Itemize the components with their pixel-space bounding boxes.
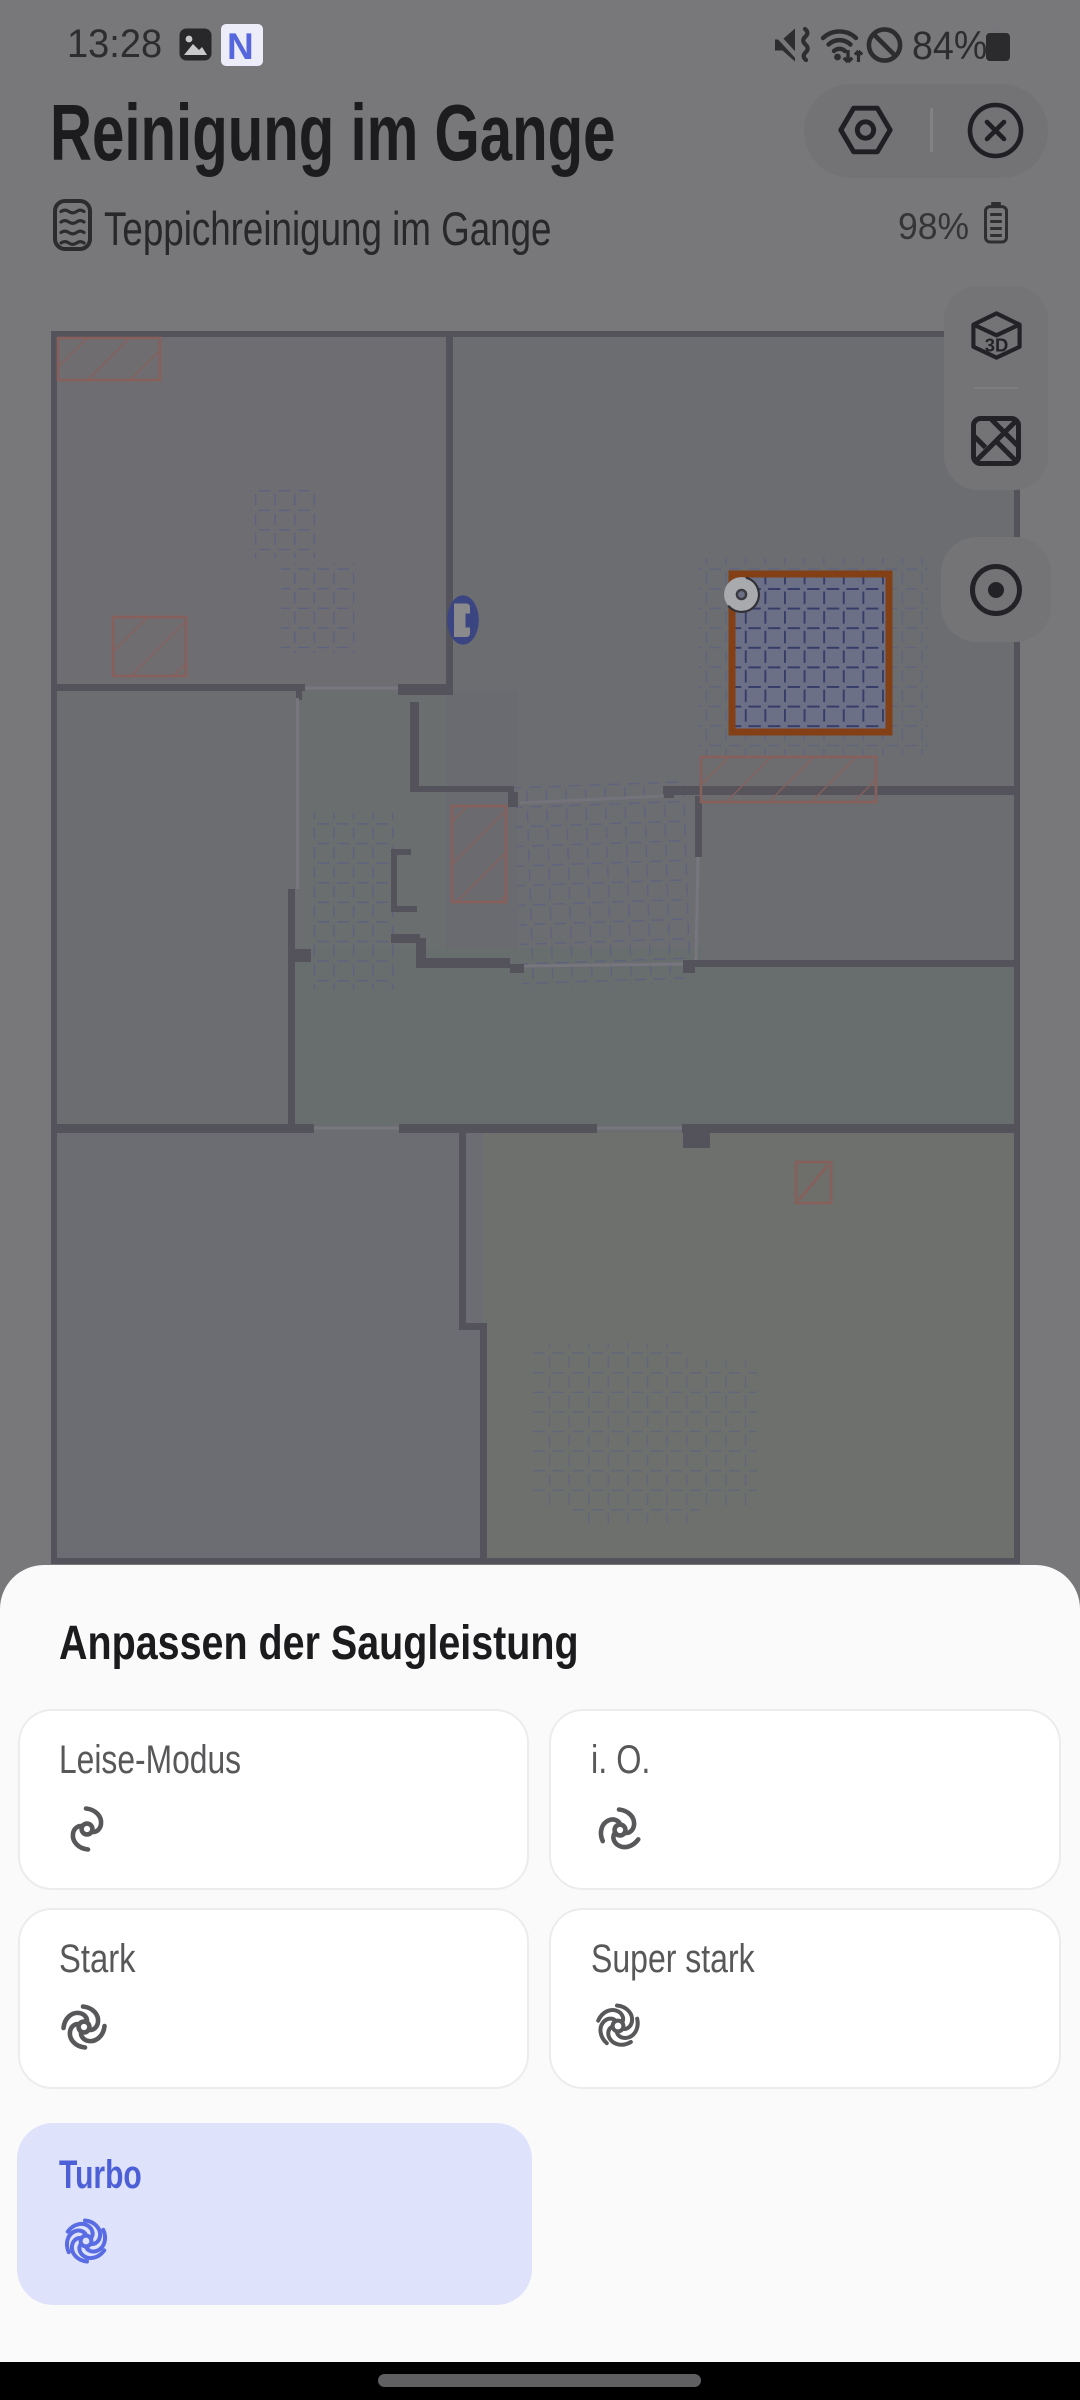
svg-text:3D: 3D	[985, 335, 1009, 356]
